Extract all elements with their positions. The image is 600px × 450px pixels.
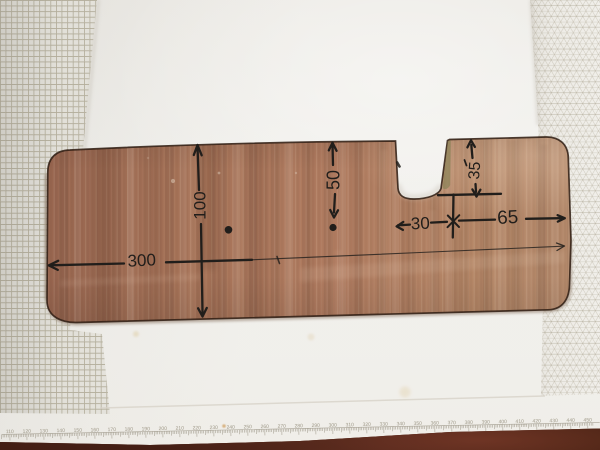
svg-text:35: 35 xyxy=(466,161,484,180)
svg-text:100: 100 xyxy=(190,191,209,219)
svg-text:65: 65 xyxy=(497,207,519,229)
svg-text:50: 50 xyxy=(324,170,344,190)
svg-text:300: 300 xyxy=(127,250,156,270)
svg-text:30: 30 xyxy=(411,214,431,234)
